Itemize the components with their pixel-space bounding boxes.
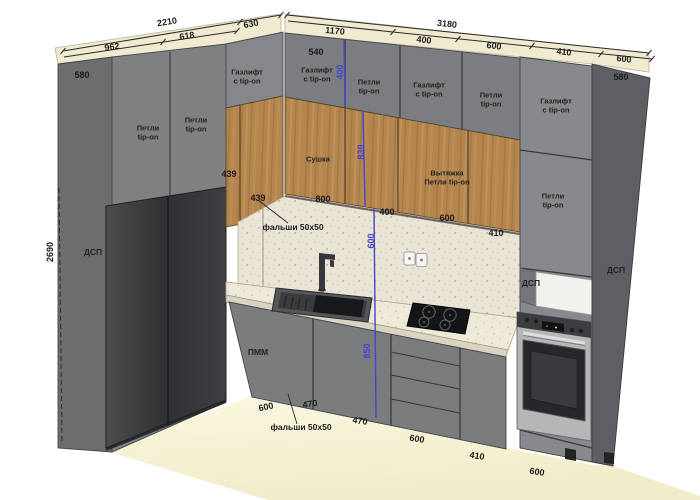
oven-glass-window [531, 351, 577, 409]
niche-side-panel [520, 268, 536, 306]
cabinet-leg [604, 452, 614, 464]
kitchen-design-canvas: 2210630962618318011704006004106005805405… [0, 0, 700, 500]
left-side-panel [58, 57, 112, 452]
cabinet-leg [565, 448, 576, 461]
built-in-oven [517, 312, 591, 441]
kitchen-drawing [0, 0, 700, 500]
corner-upper-cabinet [226, 32, 283, 108]
right-side-panel [592, 64, 650, 466]
